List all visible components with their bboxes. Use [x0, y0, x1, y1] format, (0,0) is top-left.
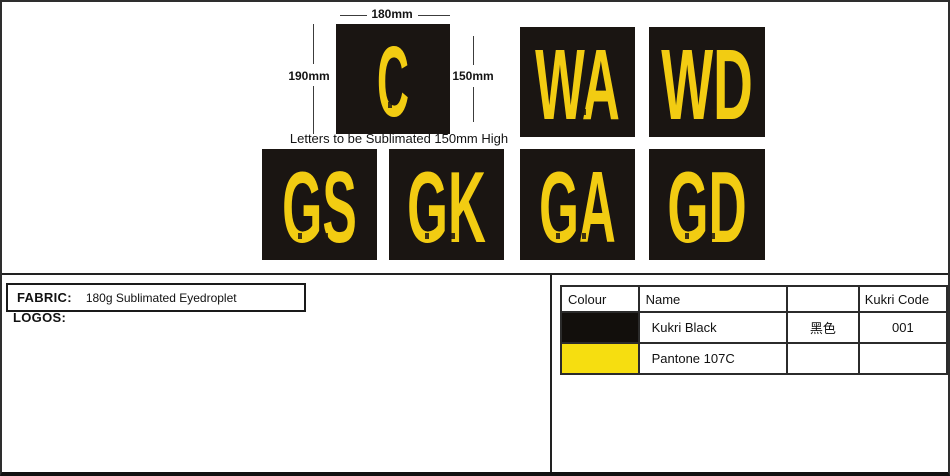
colour-code [859, 343, 947, 374]
logos-label: LOGOS: [13, 310, 66, 325]
column-divider [550, 273, 552, 472]
letter-patch-gs: GS [262, 149, 377, 260]
colour-table-header-row: Colour Name Kukri Code [561, 286, 947, 312]
spec-sheet: 180mm 190mm 150mm Letters to be Sublimat… [0, 0, 950, 476]
letter-patch-gd: GD [649, 149, 765, 260]
dimension-line-letter-top [473, 36, 474, 65]
dimension-line-height-top [313, 24, 314, 64]
stamp-mark-icon [711, 109, 715, 115]
stamp-mark-icon [556, 233, 560, 239]
patch-letter: C [377, 26, 409, 134]
stamp-mark-icon [685, 233, 689, 239]
colour-name: Pantone 107C [639, 343, 787, 374]
stamp-mark-icon [425, 233, 429, 239]
stamp-mark-icon [451, 233, 455, 239]
header-name: Name [639, 286, 787, 312]
colour-local-name: 黑色 [787, 312, 859, 343]
stamp-mark-icon [685, 109, 689, 115]
stamp-mark-icon [388, 102, 392, 108]
header-kukri-code: Kukri Code [859, 286, 947, 312]
colour-code: 001 [859, 312, 947, 343]
stamp-mark-icon [298, 233, 302, 239]
table-row: Kukri Black 黑色 001 [561, 312, 947, 343]
patch-letter: WA [535, 29, 620, 137]
dimension-line-letter-bottom [473, 87, 474, 122]
stamp-mark-icon [556, 109, 560, 115]
letter-patch-wd: WD [649, 27, 765, 137]
patch-letter: GA [539, 152, 616, 260]
stamp-mark-icon [582, 109, 586, 115]
section-divider [2, 273, 948, 275]
letter-patch-gk: GK [389, 149, 504, 260]
fabric-box: FABRIC: 180g Sublimated Eyedroplet [6, 283, 306, 312]
patch-letter: GK [407, 152, 486, 260]
fabric-label: FABRIC: [17, 290, 72, 305]
fabric-value: 180g Sublimated Eyedroplet [86, 291, 237, 305]
dimension-width-label: 180mm [362, 7, 422, 21]
dimension-line-width-right [418, 15, 450, 16]
stamp-mark-icon [582, 233, 586, 239]
swatch-kukri-black [561, 312, 639, 343]
letter-patch-c: C [336, 24, 450, 134]
header-local-name [787, 286, 859, 312]
colour-name: Kukri Black [639, 312, 787, 343]
header-colour: Colour [561, 286, 639, 312]
swatch-pantone-107c [561, 343, 639, 374]
dimension-line-height-bottom [313, 86, 314, 134]
dimension-height-label: 190mm [283, 69, 335, 83]
letter-patch-ga: GA [520, 149, 635, 260]
colour-table: Colour Name Kukri Code Kukri Black 黑色 00… [560, 285, 948, 375]
table-row: Pantone 107C [561, 343, 947, 374]
letter-patch-wa: WA [520, 27, 635, 137]
colour-local-name [787, 343, 859, 374]
stamp-mark-icon [324, 233, 328, 239]
patch-letter: WD [661, 30, 753, 137]
dimension-line-width-left [340, 15, 367, 16]
patch-letter: GD [667, 151, 746, 260]
patch-letter: GS [282, 152, 357, 260]
dimension-letter-height-label: 150mm [447, 69, 499, 83]
stamp-mark-icon [711, 233, 715, 239]
